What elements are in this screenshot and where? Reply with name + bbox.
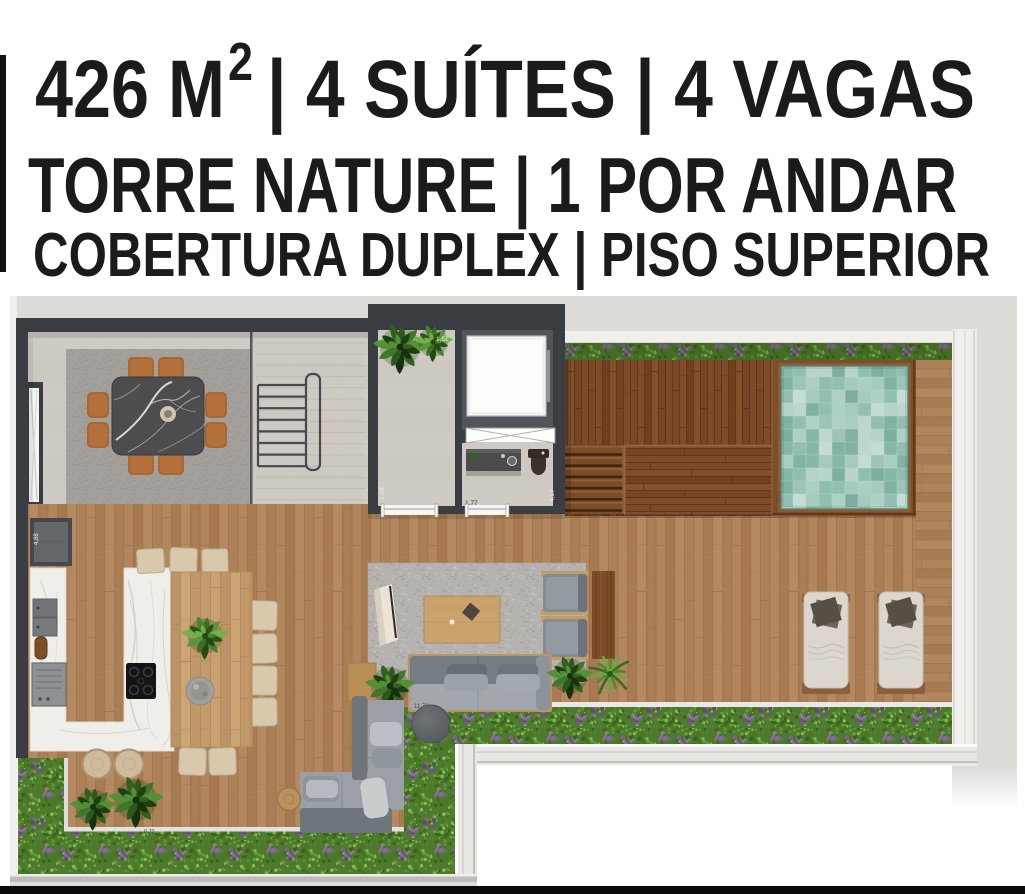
- svg-text:TORRE NATURE | 1 POR ANDAR: TORRE NATURE | 1 POR ANDAR: [28, 141, 957, 229]
- svg-text:3,34: 3,34: [776, 491, 782, 502]
- svg-text:1,51: 1,51: [436, 336, 449, 343]
- svg-text:| 4 SUÍTES | 4 VAGAS: | 4 SUÍTES | 4 VAGAS: [267, 44, 975, 136]
- svg-text:2: 2: [228, 32, 253, 92]
- svg-text:4,88: 4,88: [34, 533, 40, 545]
- svg-text:4,17: 4,17: [549, 489, 556, 502]
- svg-text:1,48: 1,48: [379, 487, 386, 500]
- svg-text:COBERTURA DUPLEX | PISO SUPERI: COBERTURA DUPLEX | PISO SUPERIOR: [33, 221, 990, 291]
- svg-text:426 M: 426 M: [35, 44, 225, 135]
- svg-text:0,70: 0,70: [144, 829, 155, 835]
